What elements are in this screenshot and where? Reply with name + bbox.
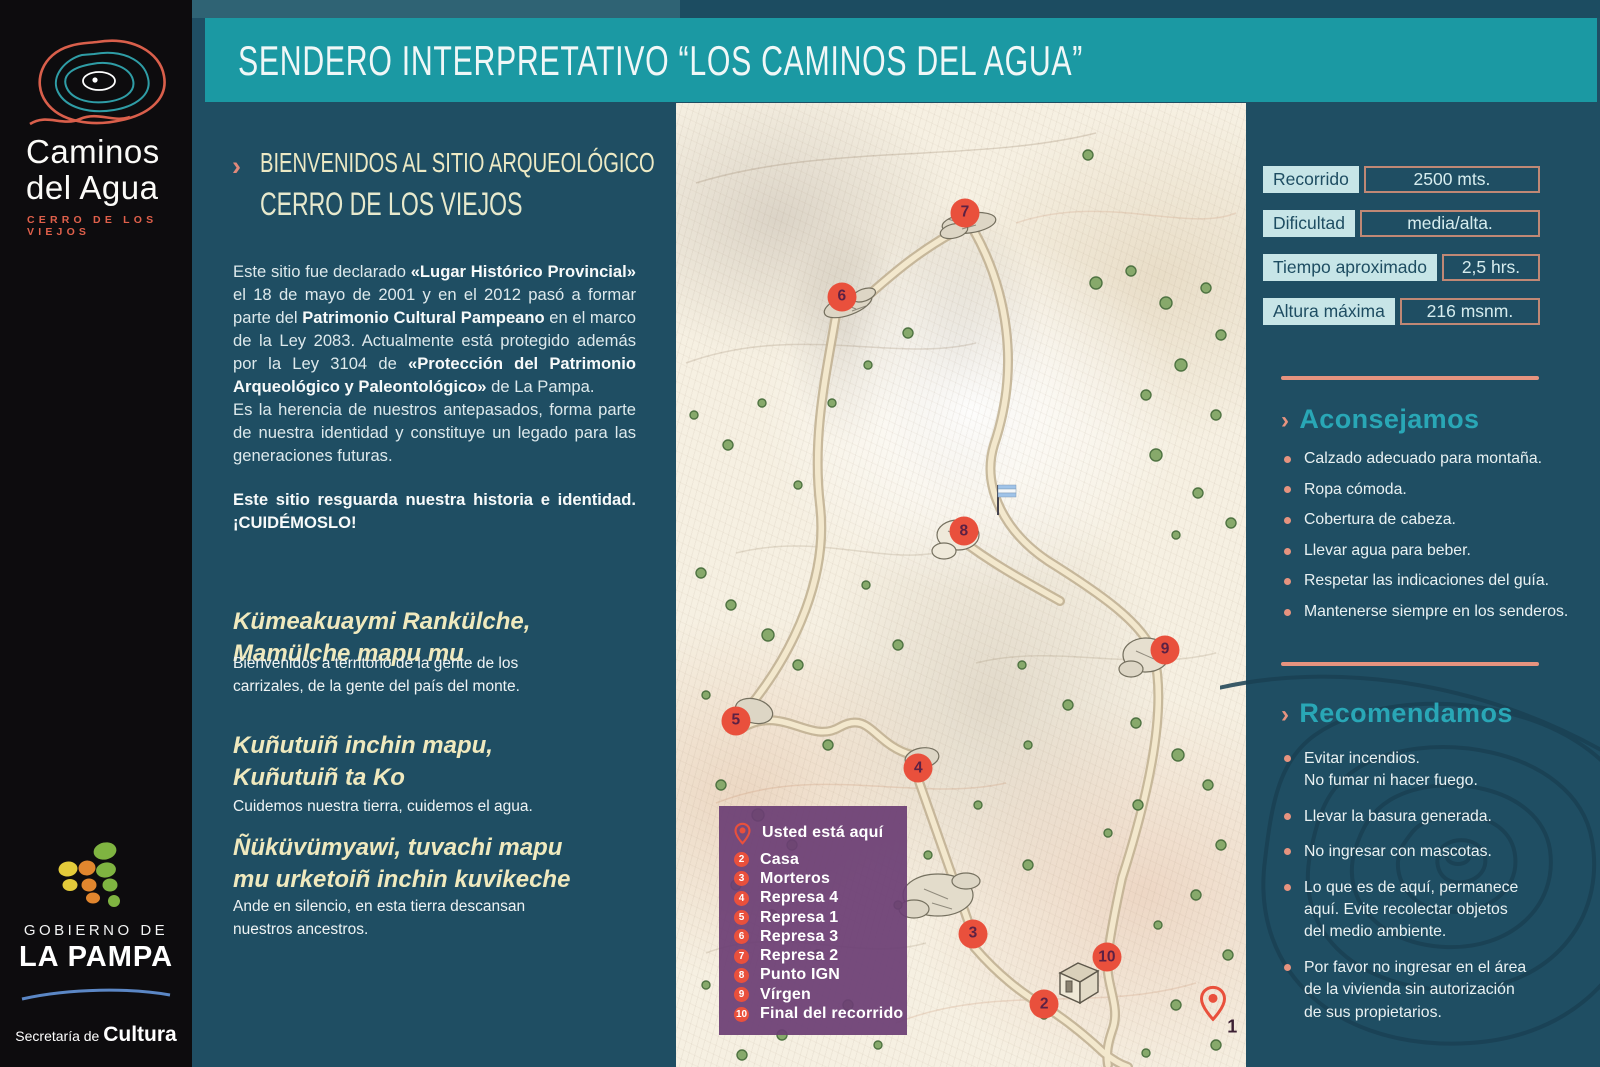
legend-number-badge: 5 (734, 910, 749, 925)
interpretive-sign: Caminos del Agua CERRO DE LOS VIEJOS GOB… (0, 0, 1600, 1067)
trail-stats: Recorrido 2500 mts. Dificultad media/alt… (1263, 166, 1540, 342)
stat-label: Dificultad (1263, 210, 1355, 237)
legend-item: 4Represa 4 (734, 889, 899, 908)
map-marker: 9 (1151, 635, 1180, 664)
welcome-heading-line1: BIENVENIDOS AL SITIO ARQUEOLÓGICO (260, 147, 655, 179)
quote-1-caption: Bienvenidos a territorio de la gente de … (233, 652, 563, 698)
list-item: Llevar agua para beber. (1284, 536, 1574, 567)
quote-3-head-line1: Ñüküvümyawi, tuvachi mapu (233, 832, 570, 864)
bullet-dot-icon (1284, 456, 1291, 463)
advice-item: Mantenerse siempre en los senderos. (1304, 601, 1568, 623)
stat-label: Tiempo aproximado (1263, 254, 1437, 281)
bullet-dot-icon (1284, 548, 1291, 555)
map-marker: 2 (1030, 990, 1059, 1019)
stat-value: 2,5 hrs. (1442, 254, 1540, 281)
recommend-item: Lo que es de aquí, permanece aquí. Evite… (1304, 877, 1518, 944)
gov-line3: Secretaría de Cultura (0, 1023, 192, 1047)
legend-item: 8Punto IGN (734, 966, 899, 985)
intro-p1-seg6: de La Pampa. (487, 377, 595, 396)
stat-value: 216 msnm. (1400, 298, 1540, 325)
intro-p1-seg3-bold: Patrimonio Cultural Pampeano (302, 308, 545, 327)
section-divider (1281, 376, 1539, 380)
bullet-dot-icon (1284, 486, 1291, 493)
gov-line3-bold: Cultura (103, 1023, 177, 1046)
recommend-item: Llevar la basura generada. (1304, 806, 1492, 828)
recommend-title: Recomendamos (1299, 698, 1512, 728)
map-marker: 7 (950, 198, 979, 227)
map-marker: 8 (949, 517, 978, 546)
title-bar: SENDERO INTERPRETATIVO “LOS CAMINOS DEL … (205, 18, 1597, 102)
advice-item: Cobertura de cabeza. (1304, 509, 1456, 531)
quote-2-head-line1: Kuñutuiñ inchin mapu, (233, 730, 493, 762)
advice-list: Calzado adecuado para montaña. Ropa cómo… (1284, 444, 1574, 628)
quote-1-head-line1: Kümeakuaymi Rankülche, (233, 606, 530, 638)
bullet-dot-icon (1284, 884, 1291, 891)
pin-icon (734, 822, 751, 845)
map-marker: 10 (1092, 943, 1121, 972)
stat-row-recorrido: Recorrido 2500 mts. (1263, 166, 1540, 193)
legend-item: 9Vírgen (734, 985, 899, 1004)
stat-row-tiempo: Tiempo aproximado 2,5 hrs. (1263, 254, 1540, 281)
top-strip-left (192, 0, 680, 18)
brand-name-line1: Caminos (26, 134, 160, 170)
intro-p1-seg0: Este sitio fue declarado (233, 262, 411, 281)
legend-item: 2Casa (734, 850, 899, 869)
section-divider (1281, 662, 1539, 666)
stat-value: media/alta. (1360, 210, 1540, 237)
recommend-item: No ingresar con mascotas. (1304, 841, 1492, 863)
quote-3-head-line2: mu urketoiñ inchin kuvikeche (233, 864, 570, 896)
list-item: Por favor no ingresar en el área de la v… (1284, 957, 1574, 1024)
legend-number-badge: 6 (734, 929, 749, 944)
legend-label: Represa 2 (760, 947, 838, 965)
quote-3-caption: Ande en silencio, en esta tierra descans… (233, 895, 563, 941)
advice-item: Ropa cómoda. (1304, 479, 1407, 501)
quote-2-caption: Cuidemos nuestra tierra, cuidemos el agu… (233, 795, 563, 818)
list-item: Lo que es de aquí, permanece aquí. Evite… (1284, 877, 1574, 944)
recommend-list: Evitar incendios. No fumar ni hacer fueg… (1284, 748, 1574, 1037)
list-item: Cobertura de cabeza. (1284, 505, 1574, 536)
quote-2-head-line2: Kuñutuiñ ta Ko (233, 762, 493, 794)
recommend-item: Evitar incendios. No fumar ni hacer fueg… (1304, 748, 1478, 793)
quote-2-heading: Kuñutuiñ inchin mapu, Kuñutuiñ ta Ko (233, 730, 493, 794)
legend-you-are-here: Usted está aquí (734, 818, 899, 848)
list-item: Calzado adecuado para montaña. (1284, 444, 1574, 475)
legend-number-badge: 8 (734, 968, 749, 983)
house-illustration (1060, 963, 1098, 1003)
legend-label: Represa 1 (760, 909, 838, 927)
stat-value: 2500 mts. (1364, 166, 1540, 193)
list-item: Mantenerse siempre en los senderos. (1284, 597, 1574, 628)
legend-number-badge: 3 (734, 871, 749, 886)
legend-label: Punto IGN (760, 966, 840, 984)
legend-item: 5Represa 1 (734, 908, 899, 927)
legend-label: Vírgen (760, 986, 811, 1004)
map-marker: 4 (904, 754, 933, 783)
gov-line1: GOBIERNO DE (0, 922, 192, 939)
advice-section-heading: ›Aconsejamos (1281, 404, 1479, 435)
bullet-dot-icon (1284, 755, 1291, 762)
advice-item: Calzado adecuado para montaña. (1304, 448, 1542, 470)
gobierno-la-pampa-logo: GOBIERNO DE LA PAMPA Secretaría de Cultu… (0, 838, 192, 1047)
quote-3-heading: Ñüküvümyawi, tuvachi mapu mu urketoiñ in… (233, 832, 570, 896)
list-item: Llevar la basura generada. (1284, 806, 1574, 828)
brand-name-line2: del Agua (26, 170, 160, 206)
legend-number-badge: 4 (734, 891, 749, 906)
chevron-right-icon: › (1281, 701, 1289, 728)
bullet-dot-icon (1284, 578, 1291, 585)
list-item: No ingresar con mascotas. (1284, 841, 1574, 863)
recommend-item: Por favor no ingresar en el área de la v… (1304, 957, 1526, 1024)
stat-row-dificultad: Dificultad media/alta. (1263, 210, 1540, 237)
bullet-dot-icon (1284, 609, 1291, 616)
intro-paragraph-2: Es la herencia de nuestros antepasados, … (233, 398, 636, 467)
stat-label: Altura máxima (1263, 298, 1395, 325)
chevron-right-icon: › (232, 151, 241, 182)
legend-number-badge: 2 (734, 852, 749, 867)
recommend-section-heading: ›Recomendamos (1281, 698, 1513, 729)
intro-p1-seg1-bold: «Lugar Histórico Provincial» (411, 262, 636, 281)
welcome-heading-line2: CERRO DE LOS VIEJOS (260, 186, 522, 223)
gov-swoosh (16, 986, 176, 1002)
legend-item: 10Final del recorrido (734, 1004, 899, 1023)
legend-label: Final del recorrido (760, 1005, 903, 1023)
map-marker: 3 (958, 919, 987, 948)
gobierno-dots-icon (58, 840, 124, 912)
gov-line2: LA PAMPA (0, 941, 192, 974)
legend-number-badge: 9 (734, 987, 749, 1002)
top-strip-right (680, 0, 1600, 18)
intro-statement-bold: Este sitio resguarda nuestra historia e … (233, 488, 636, 534)
legend-label: Usted está aquí (762, 824, 883, 842)
bullet-dot-icon (1284, 848, 1291, 855)
trail-map: 7 6 8 9 5 4 3 10 2 1 Usted está aquí (676, 103, 1246, 1067)
map-marker: 6 (827, 282, 856, 311)
brand-name: Caminos del Agua (26, 134, 160, 206)
stat-row-altura: Altura máxima 216 msnm. (1263, 298, 1540, 325)
brand-subtitle: CERRO DE LOS VIEJOS (27, 214, 192, 238)
intro-paragraph-1: Este sitio fue declarado «Lugar Históric… (233, 260, 636, 399)
caminos-del-agua-contour-logo (22, 34, 172, 139)
list-item: Ropa cómoda. (1284, 475, 1574, 506)
map-marker: 5 (721, 706, 750, 735)
gov-line3-regular: Secretaría de (15, 1028, 103, 1044)
legend-number-badge: 10 (734, 1007, 749, 1022)
list-item: Respetar las indicaciones del guía. (1284, 566, 1574, 597)
legend-item: 6Represa 3 (734, 927, 899, 946)
bullet-dot-icon (1284, 964, 1291, 971)
advice-item: Respetar las indicaciones del guía. (1304, 570, 1549, 592)
legend-item: 3Morteros (734, 869, 899, 888)
legend-item: 7Represa 2 (734, 946, 899, 965)
map-legend: Usted está aquí 2Casa 3Morteros 4Represa… (719, 806, 907, 1035)
chevron-right-icon: › (1281, 407, 1289, 434)
legend-label: Casa (760, 851, 799, 869)
legend-label: Represa 4 (760, 889, 838, 907)
sidebar: Caminos del Agua CERRO DE LOS VIEJOS GOB… (0, 0, 192, 1067)
advice-title: Aconsejamos (1299, 404, 1479, 434)
page-title: SENDERO INTERPRETATIVO “LOS CAMINOS DEL … (238, 18, 1083, 104)
legend-label: Represa 3 (760, 928, 838, 946)
advice-item: Llevar agua para beber. (1304, 540, 1471, 562)
legend-label: Morteros (760, 870, 830, 888)
list-item: Evitar incendios. No fumar ni hacer fueg… (1284, 748, 1574, 793)
bullet-dot-icon (1284, 517, 1291, 524)
legend-number-badge: 7 (734, 949, 749, 964)
bullet-dot-icon (1284, 813, 1291, 820)
stat-label: Recorrido (1263, 166, 1359, 193)
